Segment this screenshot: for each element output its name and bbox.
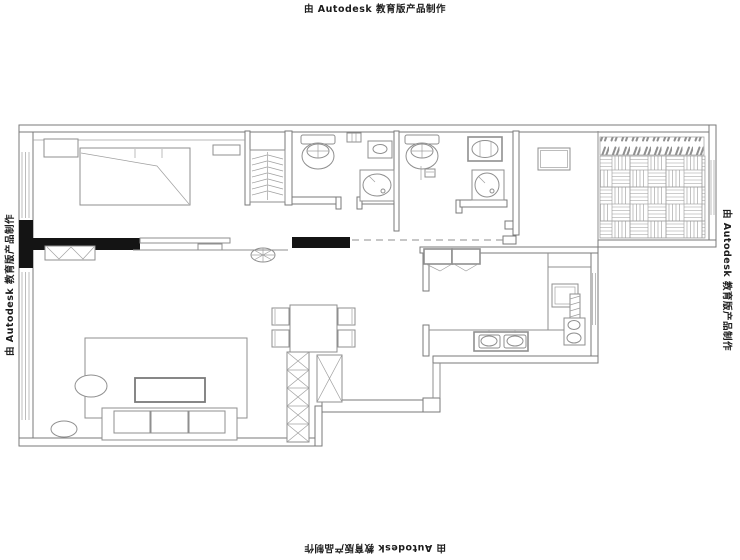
- wall-balcony-bottom: [598, 240, 716, 247]
- kitchen-sink: [564, 318, 585, 345]
- load-bearing-walls: [19, 220, 350, 268]
- dining-table: [290, 305, 337, 352]
- floor-plan-canvas: 由 Autodesk 教育版产品制作 由 Autodesk 教育版产品制作 由 …: [0, 0, 740, 560]
- floor-plan-drawing: [0, 0, 740, 560]
- nightstand-right: [213, 145, 240, 155]
- washbasin-1: [360, 170, 394, 201]
- bed: [80, 148, 190, 205]
- washbasin-2: [472, 170, 504, 200]
- solid-wall-hall: [292, 237, 350, 248]
- bathroom-1: [301, 133, 394, 201]
- toilet-1: [301, 135, 335, 169]
- wall-kitchen-right: [591, 247, 598, 356]
- corner-sink: [368, 141, 392, 158]
- tv-cabinet: [45, 246, 95, 260]
- wall-top: [19, 125, 716, 132]
- sofa-three-seat: [102, 408, 237, 440]
- basket-weave-floor: [600, 156, 705, 238]
- wall-right: [709, 125, 716, 240]
- wall-kitchen-left-b: [423, 325, 429, 356]
- washing-machine: [468, 137, 502, 161]
- solid-wall-left: [19, 220, 33, 268]
- wall-closet-left: [245, 131, 250, 205]
- balcony: [600, 137, 705, 238]
- wall-bath1-door-jamb-a: [336, 197, 341, 209]
- wall-bath1-right: [394, 131, 399, 231]
- bedroom: [33, 139, 245, 205]
- oval-stool: [51, 421, 77, 437]
- wall-kitchen-bottom: [433, 356, 598, 363]
- wall-bath2-bottom: [460, 200, 507, 207]
- two-burner-stove: [474, 330, 528, 351]
- living-room: [45, 246, 247, 440]
- wall-step: [315, 406, 322, 446]
- exhaust-vent: [347, 133, 361, 142]
- nightstand-left: [44, 139, 78, 157]
- wall-left: [19, 132, 33, 446]
- kitchen: [424, 249, 591, 351]
- storage-column-narrow: [287, 352, 309, 442]
- wall-hall-jog: [503, 236, 516, 244]
- wall-bath2-right: [513, 131, 519, 235]
- shoe-cabinet: [424, 249, 480, 271]
- louver-screen: [600, 137, 704, 155]
- toilet-2: [405, 135, 439, 169]
- heater-hatch: [570, 294, 580, 318]
- door-sill: [198, 244, 222, 250]
- sliding-door: [140, 238, 230, 243]
- wall-bath1-bottom-a: [292, 197, 338, 204]
- utility-room: [538, 148, 570, 170]
- oval-side-table: [75, 375, 107, 397]
- wall-bath2-jog: [505, 221, 513, 229]
- wall-closet-right: [285, 131, 292, 205]
- wardrobe: [250, 150, 285, 202]
- plant-fan-symbol: [251, 248, 275, 262]
- storage-column-wide: [317, 355, 342, 402]
- utility-cabinet: [538, 148, 570, 170]
- wall-entry-cap: [423, 398, 440, 412]
- bathroom-2: [405, 135, 504, 200]
- dining-area: [272, 305, 355, 442]
